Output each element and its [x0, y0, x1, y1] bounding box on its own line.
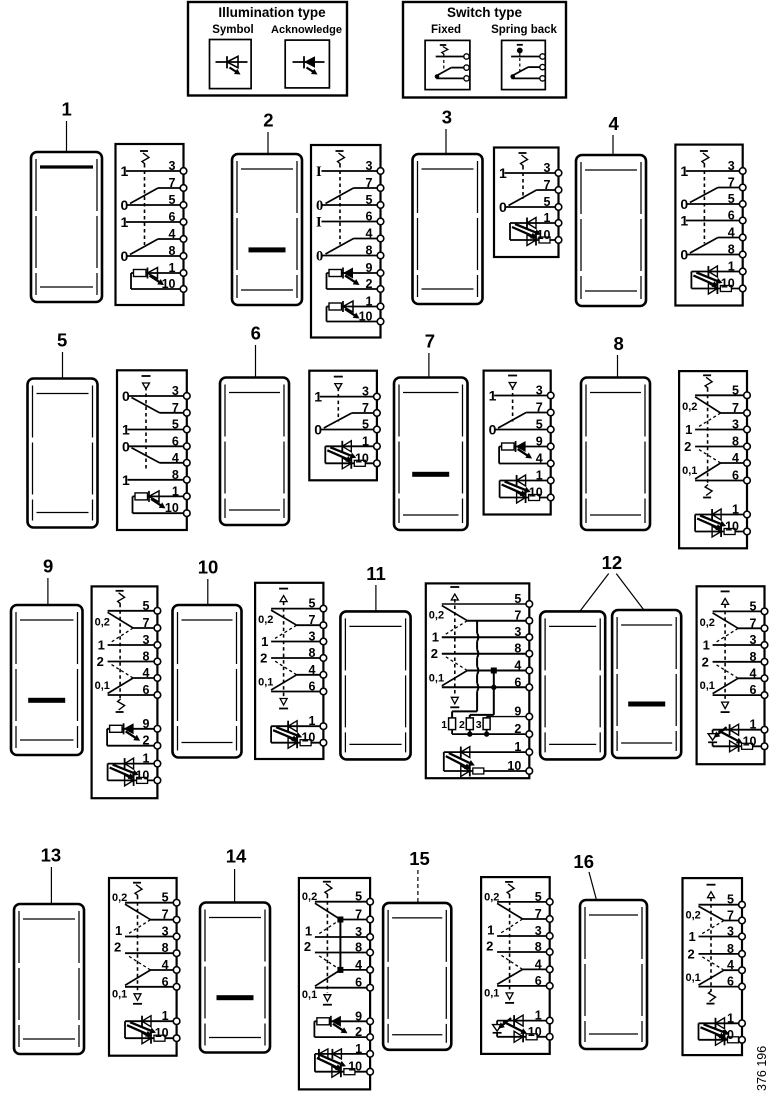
svg-text:6: 6	[162, 975, 169, 989]
svg-text:10: 10	[720, 1028, 734, 1042]
svg-text:8: 8	[366, 244, 373, 258]
svg-text:1: 1	[115, 923, 122, 938]
svg-text:7: 7	[362, 401, 369, 415]
svg-text:7: 7	[308, 613, 315, 627]
svg-text:16: 16	[573, 851, 594, 872]
svg-text:Illumination type: Illumination type	[218, 5, 326, 20]
svg-text:7: 7	[727, 909, 734, 923]
svg-text:2: 2	[355, 1025, 362, 1039]
svg-text:0,2: 0,2	[95, 616, 110, 628]
svg-text:10: 10	[198, 557, 219, 578]
svg-text:1: 1	[172, 484, 179, 498]
svg-text:3: 3	[727, 925, 734, 939]
svg-text:2: 2	[263, 110, 273, 131]
svg-text:8: 8	[727, 942, 734, 956]
svg-text:0: 0	[121, 248, 129, 264]
svg-text:4: 4	[308, 663, 315, 677]
svg-text:9: 9	[355, 1009, 362, 1023]
svg-text:0: 0	[314, 422, 322, 438]
svg-text:9: 9	[43, 556, 53, 577]
svg-text:Fixed: Fixed	[431, 24, 461, 36]
svg-text:0: 0	[121, 197, 129, 213]
svg-text:1: 1	[703, 638, 710, 653]
svg-text:1: 1	[489, 388, 497, 404]
svg-text:1: 1	[122, 422, 130, 438]
svg-text:5: 5	[732, 383, 739, 397]
svg-text:8: 8	[169, 244, 176, 258]
svg-text:7: 7	[535, 907, 542, 921]
svg-text:10: 10	[165, 501, 179, 515]
svg-text:5: 5	[142, 599, 149, 613]
svg-text:6: 6	[366, 210, 373, 224]
svg-text:1: 1	[728, 260, 735, 274]
svg-text:3: 3	[169, 159, 176, 173]
svg-text:5: 5	[727, 893, 734, 907]
svg-text:1: 1	[169, 261, 176, 275]
svg-text:4: 4	[142, 666, 149, 680]
svg-text:5: 5	[536, 418, 543, 432]
svg-text:10: 10	[162, 277, 176, 291]
svg-text:1: 1	[680, 163, 688, 179]
svg-text:5: 5	[308, 597, 315, 611]
svg-text:1: 1	[122, 472, 130, 488]
svg-text:10: 10	[529, 486, 543, 500]
svg-text:1: 1	[261, 634, 268, 649]
svg-text:5: 5	[362, 418, 369, 432]
svg-text:4: 4	[732, 451, 739, 465]
svg-text:I: I	[316, 215, 322, 231]
svg-text:0: 0	[489, 422, 497, 438]
svg-text:I: I	[316, 164, 322, 180]
svg-text:10: 10	[507, 759, 521, 773]
svg-text:2: 2	[304, 939, 311, 954]
svg-text:7: 7	[750, 616, 757, 630]
svg-text:12: 12	[602, 552, 623, 573]
svg-text:0,1: 0,1	[112, 988, 127, 1000]
svg-text:0,2: 0,2	[484, 891, 499, 903]
svg-text:9: 9	[536, 435, 543, 449]
svg-text:10: 10	[135, 768, 149, 782]
svg-text:6: 6	[172, 434, 179, 448]
svg-text:9: 9	[366, 261, 373, 275]
svg-text:2: 2	[114, 940, 121, 955]
svg-text:2: 2	[486, 939, 493, 954]
svg-text:10: 10	[348, 1060, 362, 1074]
svg-text:4: 4	[536, 452, 543, 466]
svg-text:5: 5	[535, 890, 542, 904]
svg-text:5: 5	[544, 195, 551, 209]
svg-text:7: 7	[514, 609, 521, 623]
svg-text:5: 5	[172, 418, 179, 432]
svg-text:8: 8	[142, 650, 149, 664]
svg-text:7: 7	[162, 908, 169, 922]
svg-text:2: 2	[514, 722, 521, 736]
svg-text:15: 15	[409, 848, 430, 869]
svg-text:8: 8	[750, 650, 757, 664]
svg-text:7: 7	[544, 178, 551, 192]
svg-text:0,1: 0,1	[682, 465, 697, 477]
svg-text:8: 8	[172, 468, 179, 482]
svg-text:2: 2	[688, 946, 695, 961]
svg-text:10: 10	[743, 734, 757, 748]
svg-text:3: 3	[514, 625, 521, 639]
svg-text:5: 5	[514, 592, 521, 606]
svg-text:6: 6	[355, 976, 362, 990]
svg-text:1: 1	[305, 924, 312, 939]
svg-text:1: 1	[162, 1009, 169, 1023]
svg-text:3: 3	[536, 384, 543, 398]
svg-text:4: 4	[514, 659, 521, 673]
svg-text:0: 0	[680, 247, 688, 263]
svg-text:4: 4	[366, 227, 373, 241]
svg-text:1: 1	[355, 1042, 362, 1056]
svg-text:2: 2	[142, 734, 149, 748]
svg-text:5: 5	[162, 891, 169, 905]
svg-text:7: 7	[728, 176, 735, 190]
svg-text:14: 14	[226, 846, 247, 867]
svg-text:0,2: 0,2	[258, 614, 273, 626]
svg-text:0,1: 0,1	[302, 989, 317, 1001]
svg-text:0,2: 0,2	[682, 401, 697, 413]
svg-text:1: 1	[362, 434, 369, 448]
svg-text:8: 8	[308, 646, 315, 660]
svg-text:Symbol: Symbol	[212, 24, 254, 36]
svg-text:0,2: 0,2	[700, 617, 715, 629]
svg-text:2: 2	[260, 651, 267, 666]
svg-text:3: 3	[732, 418, 739, 432]
svg-text:1: 1	[499, 165, 507, 181]
svg-text:2: 2	[459, 719, 465, 731]
svg-text:5: 5	[169, 193, 176, 207]
svg-text:8: 8	[355, 941, 362, 955]
svg-text:0: 0	[316, 198, 323, 214]
svg-text:1: 1	[308, 714, 315, 728]
svg-text:3: 3	[308, 630, 315, 644]
svg-text:7: 7	[142, 616, 149, 630]
svg-text:3: 3	[172, 384, 179, 398]
svg-text:3: 3	[728, 159, 735, 173]
svg-text:1: 1	[536, 469, 543, 483]
svg-text:0,1: 0,1	[484, 987, 499, 999]
svg-text:9: 9	[514, 705, 521, 719]
svg-text:2: 2	[431, 646, 438, 661]
svg-text:1: 1	[366, 295, 373, 309]
svg-text:3: 3	[362, 385, 369, 399]
svg-text:4: 4	[172, 451, 179, 465]
svg-text:0,2: 0,2	[302, 891, 317, 903]
svg-text:8: 8	[613, 333, 623, 354]
svg-text:1: 1	[732, 503, 739, 517]
svg-text:8: 8	[732, 435, 739, 449]
svg-text:1: 1	[121, 163, 129, 179]
svg-text:6: 6	[727, 975, 734, 989]
svg-text:9: 9	[142, 717, 149, 731]
svg-text:0,2: 0,2	[112, 892, 127, 904]
svg-text:3: 3	[750, 633, 757, 647]
svg-text:6: 6	[169, 210, 176, 224]
svg-text:8: 8	[728, 243, 735, 257]
svg-text:5: 5	[57, 330, 67, 351]
svg-text:0,2: 0,2	[686, 910, 701, 922]
svg-text:13: 13	[41, 845, 62, 866]
svg-text:1: 1	[680, 213, 688, 229]
svg-text:1: 1	[685, 422, 692, 437]
svg-text:0: 0	[499, 199, 507, 215]
svg-text:7: 7	[536, 401, 543, 415]
svg-text:2: 2	[684, 439, 691, 454]
svg-text:7: 7	[172, 401, 179, 415]
svg-text:0: 0	[122, 388, 130, 404]
svg-text:11: 11	[366, 563, 386, 584]
svg-text:6: 6	[514, 675, 521, 689]
svg-text:6: 6	[142, 683, 149, 697]
svg-text:10: 10	[721, 277, 735, 291]
svg-text:4: 4	[162, 958, 169, 972]
svg-text:7: 7	[355, 908, 362, 922]
svg-text:0,1: 0,1	[95, 680, 110, 692]
svg-text:3: 3	[366, 159, 373, 173]
svg-text:0,1: 0,1	[700, 680, 715, 692]
svg-text:0,1: 0,1	[258, 677, 273, 689]
svg-text:1: 1	[314, 389, 322, 405]
svg-text:1: 1	[98, 638, 105, 653]
svg-text:0,1: 0,1	[686, 972, 701, 984]
svg-text:1: 1	[487, 923, 494, 938]
svg-text:3: 3	[355, 925, 362, 939]
svg-text:1: 1	[750, 718, 757, 732]
svg-text:5: 5	[728, 192, 735, 206]
svg-text:8: 8	[162, 941, 169, 955]
svg-text:3: 3	[476, 719, 482, 731]
svg-text:10: 10	[537, 228, 551, 242]
svg-text:2: 2	[702, 654, 709, 669]
svg-text:2: 2	[97, 654, 104, 669]
svg-text:10: 10	[528, 1025, 542, 1039]
svg-text:Spring back: Spring back	[491, 24, 557, 36]
svg-text:6: 6	[750, 683, 757, 697]
svg-text:4: 4	[355, 958, 362, 972]
svg-text:4: 4	[750, 666, 757, 680]
svg-text:1: 1	[544, 211, 551, 225]
svg-text:6: 6	[308, 680, 315, 694]
svg-text:10: 10	[359, 310, 373, 324]
svg-text:10: 10	[155, 1026, 169, 1040]
svg-text:4: 4	[169, 227, 176, 241]
svg-text:8: 8	[514, 642, 521, 656]
svg-text:3: 3	[442, 106, 452, 127]
svg-text:Switch type: Switch type	[447, 5, 523, 20]
svg-text:10: 10	[355, 451, 369, 465]
svg-text:1: 1	[432, 630, 439, 645]
svg-text:8: 8	[535, 940, 542, 954]
svg-text:10: 10	[725, 520, 739, 534]
svg-text:4: 4	[727, 958, 734, 972]
svg-text:3: 3	[162, 925, 169, 939]
svg-text:4: 4	[728, 226, 735, 240]
svg-text:1: 1	[689, 929, 696, 944]
svg-text:1: 1	[142, 752, 149, 766]
svg-text:1: 1	[441, 719, 447, 731]
svg-text:Acknowledge: Acknowledge	[271, 24, 342, 36]
svg-text:2: 2	[366, 277, 373, 291]
svg-text:3: 3	[142, 633, 149, 647]
svg-text:6: 6	[251, 323, 261, 344]
svg-text:7: 7	[366, 176, 373, 190]
svg-text:6: 6	[728, 209, 735, 223]
svg-text:7: 7	[732, 401, 739, 415]
svg-text:0: 0	[122, 438, 130, 454]
svg-text:1: 1	[727, 1011, 734, 1025]
svg-text:4: 4	[609, 113, 620, 134]
svg-text:0: 0	[680, 196, 688, 212]
svg-text:6: 6	[535, 974, 542, 988]
svg-text:1: 1	[62, 99, 72, 120]
svg-text:1: 1	[535, 1009, 542, 1023]
svg-text:7: 7	[425, 331, 435, 352]
svg-text:5: 5	[355, 890, 362, 904]
svg-text:1: 1	[514, 740, 521, 754]
svg-text:5: 5	[366, 193, 373, 207]
svg-text:376 196: 376 196	[755, 1046, 769, 1091]
svg-text:0,1: 0,1	[429, 672, 444, 684]
svg-text:7: 7	[169, 176, 176, 190]
svg-text:1: 1	[121, 214, 129, 230]
svg-text:5: 5	[750, 599, 757, 613]
svg-text:0: 0	[316, 249, 323, 265]
svg-text:4: 4	[535, 957, 542, 971]
svg-text:10: 10	[301, 731, 315, 745]
svg-text:3: 3	[535, 924, 542, 938]
svg-text:6: 6	[732, 469, 739, 483]
svg-text:0,2: 0,2	[429, 609, 444, 621]
svg-text:3: 3	[544, 161, 551, 175]
